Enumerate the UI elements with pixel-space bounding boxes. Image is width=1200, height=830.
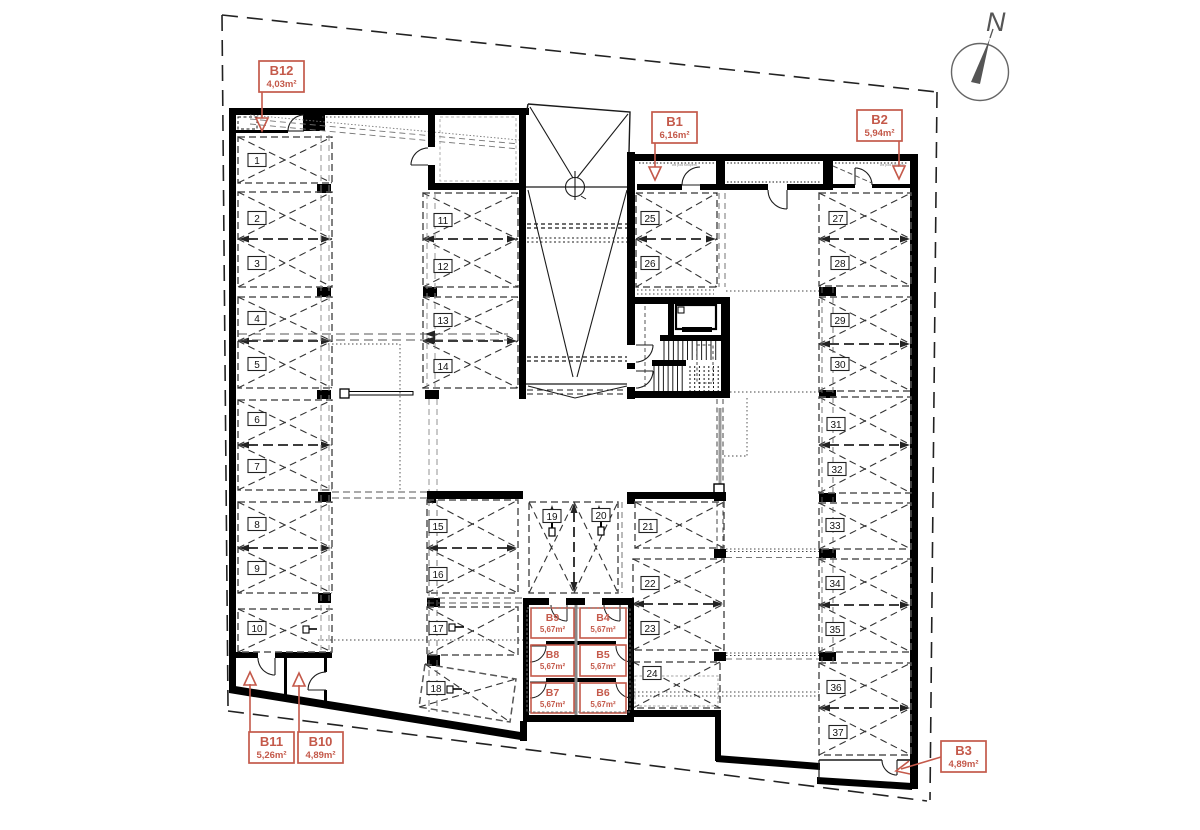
svg-text:6,16m²: 6,16m² (659, 130, 689, 141)
svg-text:B7: B7 (546, 687, 560, 699)
svg-text:11: 11 (438, 216, 449, 227)
svg-text:12: 12 (437, 262, 449, 273)
svg-text:32: 32 (831, 465, 843, 476)
svg-text:29: 29 (834, 316, 846, 327)
svg-text:B8: B8 (546, 649, 560, 661)
svg-text:B12: B12 (270, 63, 294, 78)
svg-text:5,94m²: 5,94m² (864, 128, 894, 139)
svg-text:5,67m²: 5,67m² (540, 662, 566, 671)
svg-text:B6: B6 (596, 687, 610, 699)
svg-text:21: 21 (642, 522, 654, 533)
svg-text:4: 4 (254, 314, 260, 325)
svg-text:5,26m²: 5,26m² (256, 750, 286, 761)
svg-text:27: 27 (832, 214, 844, 225)
svg-text:37: 37 (832, 728, 844, 739)
svg-text:4,03m²: 4,03m² (266, 79, 296, 90)
svg-text:wz pod stropem: wz pod stropem (672, 163, 697, 167)
svg-text:25: 25 (644, 214, 656, 225)
svg-text:8: 8 (254, 520, 260, 531)
svg-text:N: N (986, 7, 1006, 37)
svg-text:34: 34 (829, 579, 841, 590)
svg-text:14: 14 (437, 362, 449, 373)
svg-text:B11: B11 (260, 734, 283, 749)
svg-text:6: 6 (254, 415, 260, 426)
svg-text:B10: B10 (309, 734, 333, 749)
svg-text:35: 35 (829, 625, 841, 636)
svg-text:B3: B3 (955, 743, 972, 758)
svg-text:5,67m²: 5,67m² (590, 700, 616, 709)
svg-text:33: 33 (829, 521, 841, 532)
svg-text:9: 9 (254, 564, 260, 575)
svg-text:4,89m²: 4,89m² (948, 759, 978, 770)
svg-text:36: 36 (830, 683, 842, 694)
svg-text:30: 30 (834, 360, 846, 371)
svg-text:16: 16 (432, 570, 444, 581)
svg-text:31: 31 (830, 420, 842, 431)
svg-text:B2: B2 (871, 112, 888, 127)
svg-text:7: 7 (254, 462, 260, 473)
svg-text:5,67m²: 5,67m² (540, 625, 566, 634)
svg-text:B4: B4 (596, 612, 610, 624)
svg-text:15: 15 (432, 522, 444, 533)
svg-text:20: 20 (595, 511, 607, 522)
svg-text:B5: B5 (596, 649, 610, 661)
svg-text:26: 26 (644, 259, 656, 270)
svg-text:5: 5 (254, 360, 260, 371)
svg-text:B1: B1 (666, 114, 683, 129)
svg-text:13: 13 (437, 316, 449, 327)
svg-text:10: 10 (251, 624, 263, 635)
svg-text:B9: B9 (546, 612, 560, 624)
svg-text:4,89m²: 4,89m² (305, 750, 335, 761)
svg-text:19: 19 (546, 512, 558, 523)
svg-text:17: 17 (432, 624, 444, 635)
svg-text:2: 2 (254, 214, 260, 225)
svg-text:24: 24 (646, 669, 658, 680)
svg-text:1: 1 (254, 156, 260, 167)
svg-text:23: 23 (644, 624, 656, 635)
svg-text:5,67m²: 5,67m² (540, 700, 566, 709)
svg-text:3: 3 (254, 259, 260, 270)
svg-text:5,67m²: 5,67m² (590, 662, 616, 671)
svg-text:22: 22 (644, 579, 656, 590)
svg-text:5,67m²: 5,67m² (590, 625, 616, 634)
svg-text:28: 28 (834, 259, 846, 270)
svg-text:18: 18 (430, 684, 442, 695)
